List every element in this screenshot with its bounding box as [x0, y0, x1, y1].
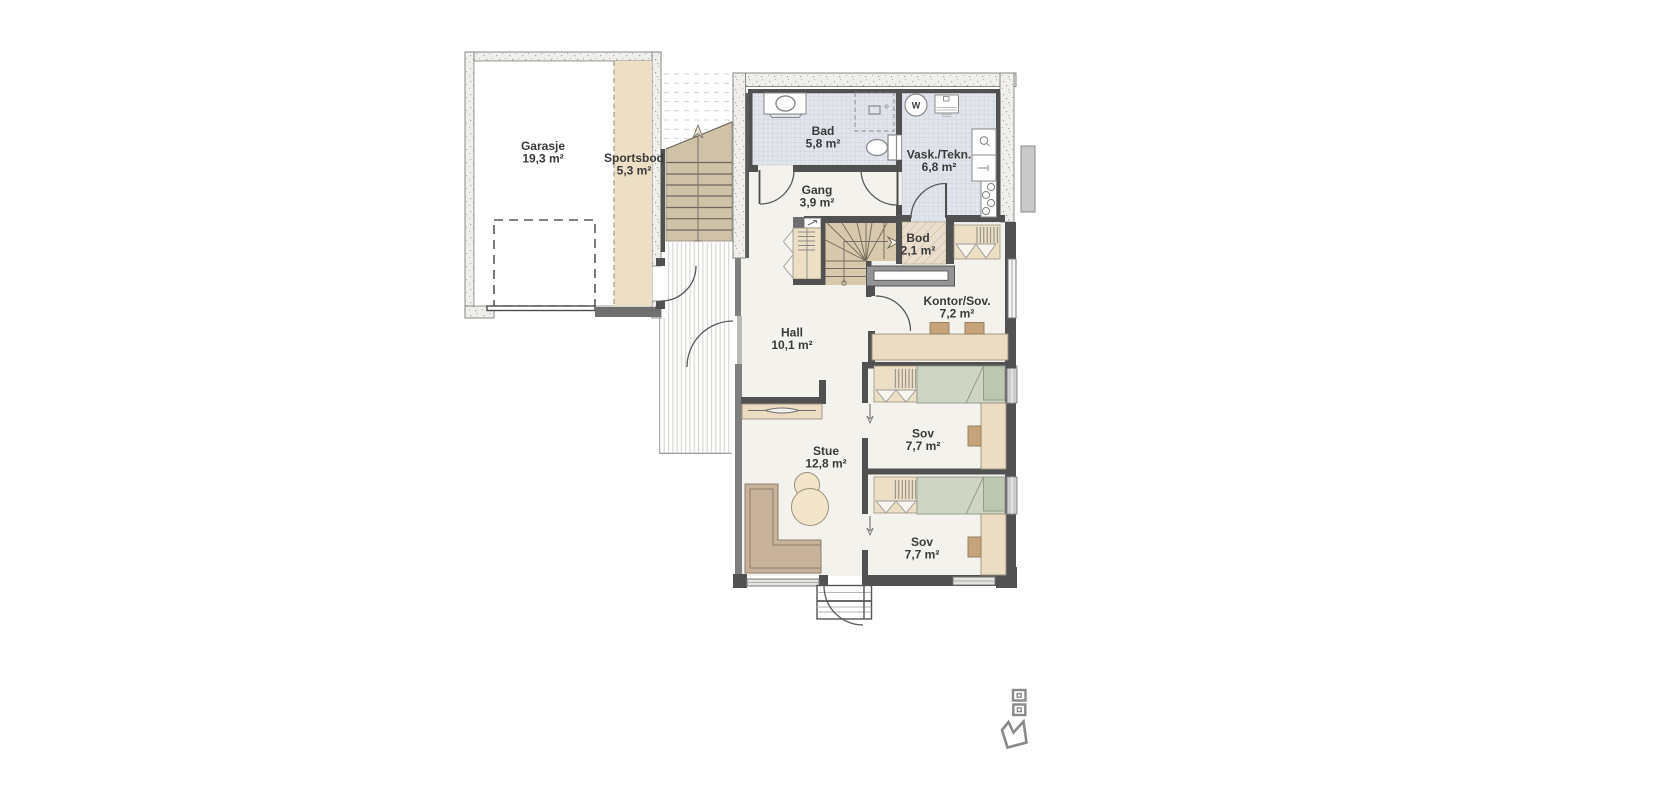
svg-text:5,3 m²: 5,3 m²	[617, 164, 652, 178]
svg-text:12,8 m²: 12,8 m²	[805, 457, 846, 471]
svg-text:6,8 m²: 6,8 m²	[922, 160, 957, 174]
svg-text:7,7 m²: 7,7 m²	[906, 439, 941, 453]
svg-text:W: W	[912, 101, 921, 111]
svg-text:7,7 m²: 7,7 m²	[905, 548, 940, 562]
svg-text:7,2 m²: 7,2 m²	[940, 307, 975, 321]
svg-text:5,8 m²: 5,8 m²	[806, 137, 841, 151]
svg-text:10,1 m²: 10,1 m²	[771, 338, 812, 352]
svg-text:2,1 m²: 2,1 m²	[901, 244, 936, 258]
svg-text:3,9 m²: 3,9 m²	[800, 196, 835, 210]
svg-text:19,3 m²: 19,3 m²	[522, 152, 563, 166]
